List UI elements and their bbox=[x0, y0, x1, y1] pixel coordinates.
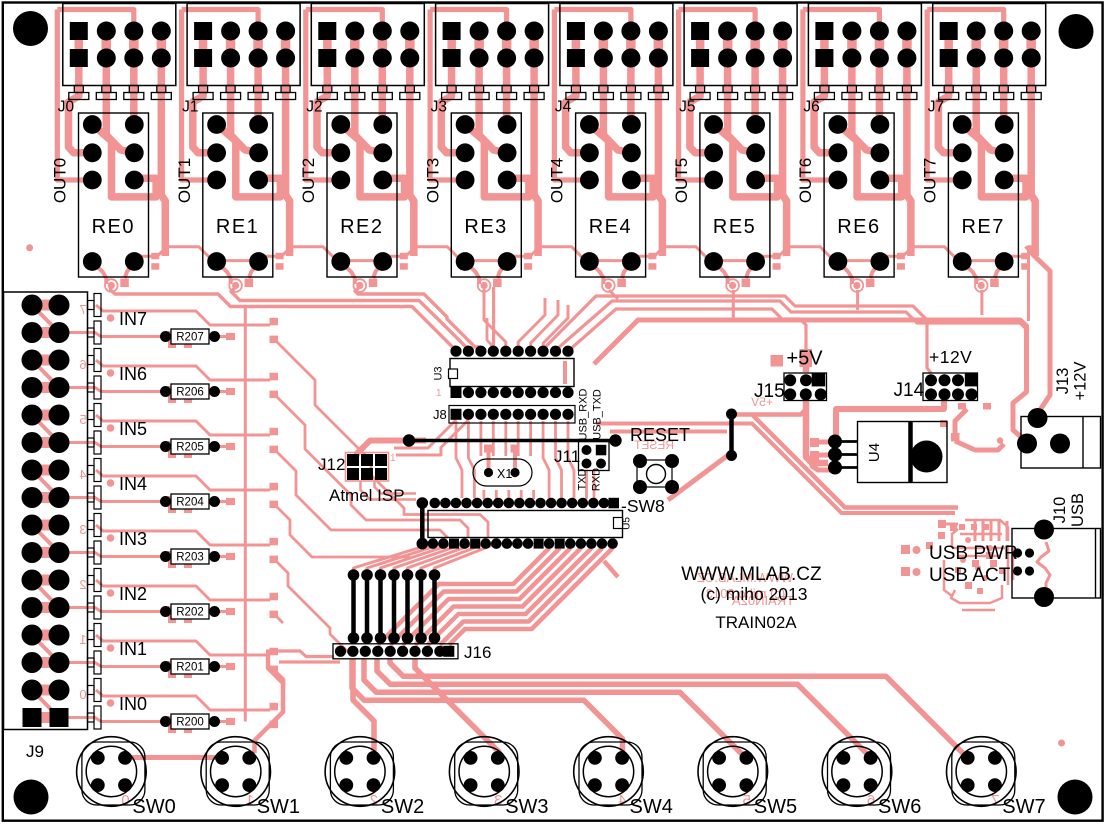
svg-text:RE1: RE1 bbox=[216, 216, 259, 238]
svg-text:R207: R207 bbox=[176, 332, 204, 344]
svg-text:USB PWR: USB PWR bbox=[929, 543, 1018, 564]
svg-text:RE0: RE0 bbox=[92, 216, 135, 238]
svg-text:IN4: IN4 bbox=[119, 474, 147, 494]
svg-text:J13: J13 bbox=[1054, 368, 1072, 395]
svg-text:J3: J3 bbox=[431, 99, 447, 116]
svg-text:OUT2: OUT2 bbox=[299, 158, 318, 203]
svg-text:J16: J16 bbox=[464, 643, 491, 662]
svg-text:TXD: TXD bbox=[577, 468, 589, 490]
svg-text:X1: X1 bbox=[497, 467, 512, 481]
svg-text:IN6: IN6 bbox=[119, 364, 147, 384]
svg-text:R206: R206 bbox=[176, 387, 204, 399]
svg-text:U5: U5 bbox=[622, 517, 633, 530]
svg-text:USB_TXD: USB_TXD bbox=[592, 389, 604, 440]
svg-text:J10: J10 bbox=[1051, 497, 1069, 524]
svg-text:J14: J14 bbox=[894, 380, 925, 401]
svg-text:J8: J8 bbox=[433, 407, 447, 422]
svg-text:5: 5 bbox=[79, 412, 86, 427]
svg-text:RE7: RE7 bbox=[961, 216, 1004, 238]
svg-text:RE6: RE6 bbox=[837, 216, 880, 238]
svg-text:J2: J2 bbox=[306, 99, 322, 116]
svg-text:4: 4 bbox=[79, 467, 86, 482]
svg-text:3: 3 bbox=[79, 522, 86, 537]
svg-text:R201: R201 bbox=[176, 662, 204, 674]
svg-text:7: 7 bbox=[79, 302, 86, 317]
svg-text:USB_RXD: USB_RXD bbox=[578, 388, 590, 440]
svg-text:IN3: IN3 bbox=[119, 529, 147, 549]
svg-text:OUT6: OUT6 bbox=[796, 158, 815, 203]
svg-text:OUT7: OUT7 bbox=[921, 158, 940, 203]
svg-text:SW3: SW3 bbox=[505, 796, 548, 818]
svg-text:SW0: SW0 bbox=[132, 796, 175, 818]
svg-text:IN2: IN2 bbox=[119, 584, 147, 604]
svg-text:J5: J5 bbox=[679, 99, 695, 116]
svg-text:R202: R202 bbox=[176, 607, 204, 619]
svg-text:J9: J9 bbox=[26, 742, 44, 761]
svg-text:SW4: SW4 bbox=[630, 796, 673, 818]
svg-text:RXD: RXD bbox=[591, 468, 603, 491]
svg-text:SW6: SW6 bbox=[878, 796, 921, 818]
svg-text:USB: USB bbox=[1069, 493, 1087, 527]
svg-text:1: 1 bbox=[436, 388, 442, 399]
svg-text:R205: R205 bbox=[176, 442, 204, 454]
svg-text:RE5: RE5 bbox=[713, 216, 756, 238]
svg-text:Atmel ISP: Atmel ISP bbox=[329, 486, 405, 505]
svg-text:J7: J7 bbox=[928, 99, 944, 116]
svg-text:-SW8: -SW8 bbox=[621, 496, 665, 516]
svg-text:RE4: RE4 bbox=[589, 216, 632, 238]
svg-text:J0: J0 bbox=[58, 99, 75, 116]
svg-text:J4: J4 bbox=[555, 99, 572, 116]
svg-text:IN0: IN0 bbox=[119, 694, 147, 714]
svg-text:(c) miho 2013: (c) miho 2013 bbox=[701, 584, 808, 604]
svg-text:SW1: SW1 bbox=[257, 796, 300, 818]
svg-text:J12: J12 bbox=[318, 455, 345, 474]
svg-text:J6: J6 bbox=[803, 99, 819, 116]
svg-text:J1: J1 bbox=[182, 99, 198, 116]
svg-text:J11: J11 bbox=[554, 447, 580, 466]
svg-text:OUT3: OUT3 bbox=[423, 158, 442, 203]
svg-text:J15: J15 bbox=[754, 381, 785, 402]
svg-text:RE2: RE2 bbox=[340, 216, 383, 238]
svg-text:1: 1 bbox=[390, 453, 396, 464]
svg-text:+12V: +12V bbox=[929, 347, 972, 367]
svg-text:OUT5: OUT5 bbox=[672, 158, 691, 203]
svg-text:6: 6 bbox=[79, 357, 86, 372]
svg-text:IN5: IN5 bbox=[119, 419, 147, 439]
svg-text:SW2: SW2 bbox=[381, 796, 424, 818]
svg-text:SW7: SW7 bbox=[1002, 796, 1045, 818]
svg-text:1: 1 bbox=[79, 632, 86, 647]
svg-text:R203: R203 bbox=[176, 552, 204, 564]
svg-text:2: 2 bbox=[79, 577, 86, 592]
svg-text:U3: U3 bbox=[433, 366, 445, 380]
svg-text:WWW.MLAB.CZ: WWW.MLAB.CZ bbox=[681, 564, 822, 585]
svg-text:IN1: IN1 bbox=[119, 639, 147, 659]
svg-text:+5V: +5V bbox=[787, 348, 824, 370]
svg-text:SW5: SW5 bbox=[754, 796, 797, 818]
svg-text:IN7: IN7 bbox=[119, 309, 147, 329]
svg-text:R204: R204 bbox=[176, 497, 204, 509]
svg-text:OUT1: OUT1 bbox=[175, 158, 194, 203]
svg-text:R200: R200 bbox=[176, 717, 204, 729]
svg-text:U4: U4 bbox=[866, 443, 883, 462]
svg-text:OUT0: OUT0 bbox=[51, 158, 70, 203]
svg-text:+12V: +12V bbox=[1072, 362, 1090, 401]
svg-text:0: 0 bbox=[79, 687, 86, 702]
svg-text:TRAIN02A: TRAIN02A bbox=[715, 613, 797, 632]
svg-text:RESET: RESET bbox=[630, 425, 690, 445]
svg-text:USB ACT: USB ACT bbox=[929, 565, 1011, 586]
svg-text:OUT4: OUT4 bbox=[548, 158, 567, 203]
svg-text:RE3: RE3 bbox=[464, 216, 507, 238]
